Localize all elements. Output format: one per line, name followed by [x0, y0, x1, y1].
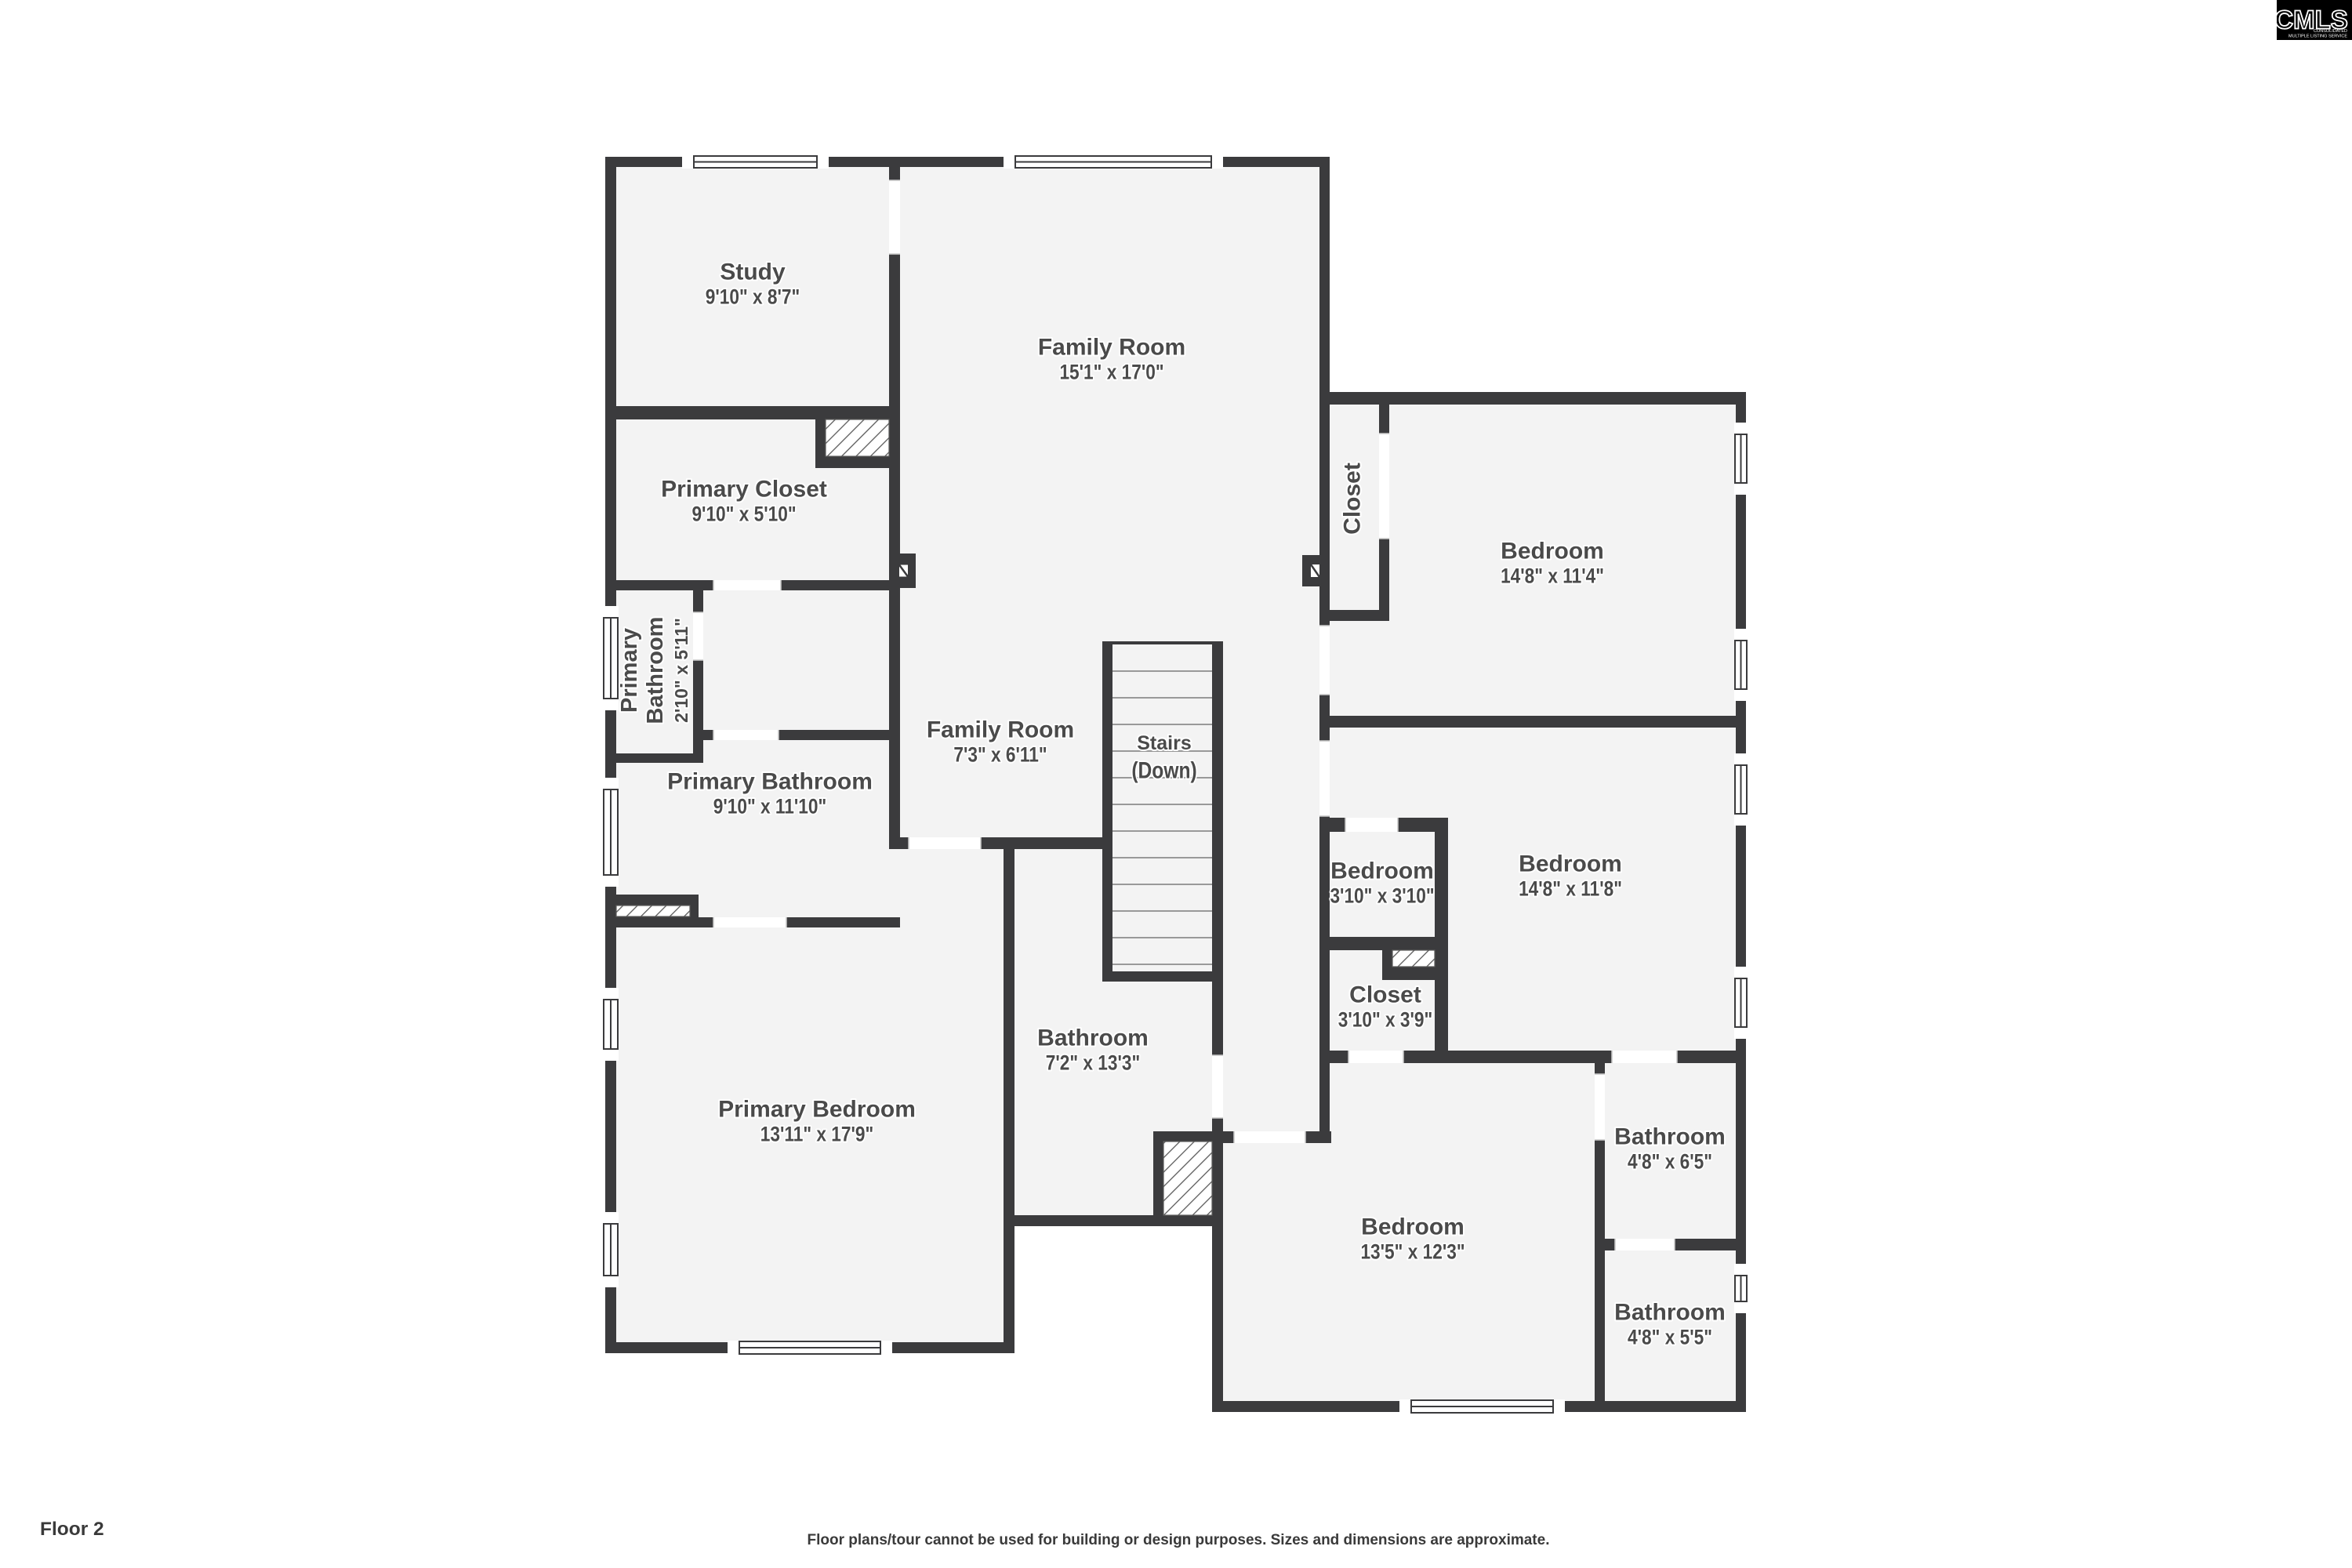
svg-text:Bathroom: Bathroom	[643, 617, 668, 724]
svg-text:14'8" x 11'4": 14'8" x 11'4"	[1501, 564, 1604, 588]
svg-text:Study: Study	[720, 260, 786, 285]
svg-text:14'8" x 11'8": 14'8" x 11'8"	[1519, 877, 1622, 901]
svg-text:MULTIPLE LISTING SERVICE: MULTIPLE LISTING SERVICE	[2288, 34, 2347, 39]
svg-text:Closet: Closet	[1340, 463, 1366, 535]
svg-text:Primary: Primary	[617, 628, 642, 713]
svg-text:Closet: Closet	[1349, 982, 1421, 1008]
svg-text:(Down): (Down)	[1131, 758, 1196, 783]
svg-text:15'1" x 17'0": 15'1" x 17'0"	[1059, 361, 1163, 384]
svg-text:Bedroom: Bedroom	[1501, 539, 1604, 564]
svg-text:Stairs: Stairs	[1137, 732, 1191, 754]
svg-text:3'10" x 3'9": 3'10" x 3'9"	[1338, 1008, 1433, 1032]
svg-text:Primary Closet: Primary Closet	[661, 477, 827, 503]
svg-text:CONSOLIDATED: CONSOLIDATED	[2314, 29, 2347, 34]
svg-text:7'2" x 13'3": 7'2" x 13'3"	[1046, 1051, 1141, 1075]
svg-text:Bedroom: Bedroom	[1361, 1214, 1465, 1240]
svg-text:4'8" x 5'5": 4'8" x 5'5"	[1628, 1326, 1712, 1349]
svg-text:Bathroom: Bathroom	[1614, 1124, 1726, 1150]
svg-text:Floor plans/tour cannot be use: Floor plans/tour cannot be used for buil…	[808, 1532, 1550, 1548]
svg-text:13'5" x 12'3": 13'5" x 12'3"	[1360, 1240, 1465, 1264]
svg-text:9'10" x 11'10": 9'10" x 11'10"	[713, 795, 826, 818]
svg-text:9'10" x 8'7": 9'10" x 8'7"	[706, 285, 800, 309]
svg-text:Bathroom: Bathroom	[1037, 1025, 1149, 1051]
svg-text:Bathroom: Bathroom	[1614, 1300, 1726, 1326]
svg-text:Bedroom: Bedroom	[1519, 851, 1622, 877]
svg-text:Floor 2: Floor 2	[40, 1519, 104, 1540]
svg-text:Bedroom: Bedroom	[1330, 858, 1434, 884]
svg-text:7'3" x 6'11": 7'3" x 6'11"	[953, 743, 1047, 767]
svg-text:Family Room: Family Room	[1038, 335, 1185, 361]
svg-text:4'8" x 6'5": 4'8" x 6'5"	[1628, 1150, 1712, 1174]
svg-text:Primary Bedroom: Primary Bedroom	[718, 1097, 916, 1123]
svg-text:Family Room: Family Room	[927, 717, 1074, 743]
svg-text:2'10" x 5'11": 2'10" x 5'11"	[671, 618, 691, 723]
svg-text:Primary Bathroom: Primary Bathroom	[667, 769, 873, 795]
svg-text:3'10" x 3'10": 3'10" x 3'10"	[1330, 884, 1434, 908]
svg-text:9'10" x 5'10": 9'10" x 5'10"	[691, 503, 796, 526]
svg-text:13'11" x 17'9": 13'11" x 17'9"	[760, 1123, 873, 1146]
